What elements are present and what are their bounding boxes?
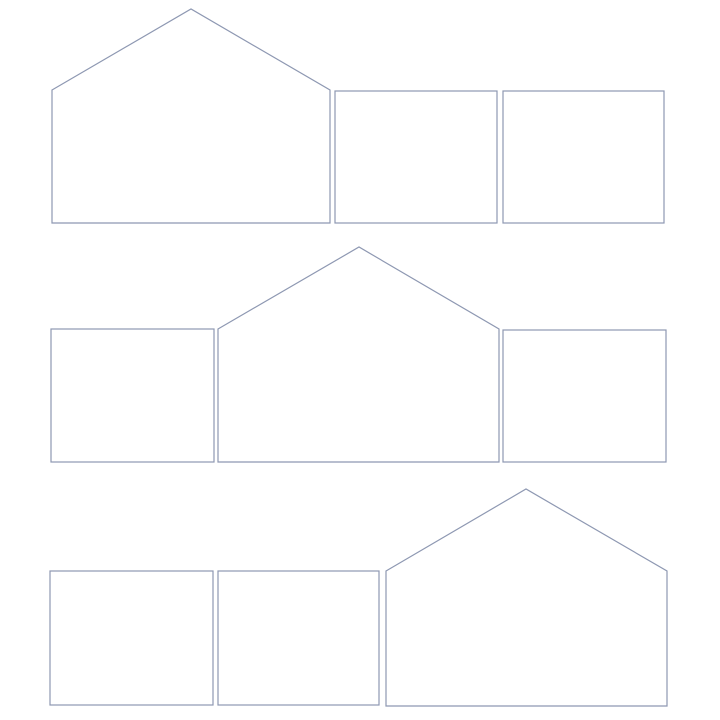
row2-rectangle-shape-1 — [51, 329, 214, 462]
row3-rectangle-shape-2 — [218, 571, 379, 705]
row2-rectangle-shape-2 — [503, 330, 666, 462]
row3-house-shape — [386, 489, 667, 706]
diagram-canvas — [0, 0, 720, 720]
row2-house-shape — [218, 247, 499, 462]
row1-rectangle-shape-1 — [335, 91, 497, 223]
row1-house-shape — [52, 9, 330, 223]
shapes-svg — [0, 0, 720, 720]
row3-rectangle-shape-1 — [50, 571, 213, 705]
row1-rectangle-shape-2 — [503, 91, 664, 223]
